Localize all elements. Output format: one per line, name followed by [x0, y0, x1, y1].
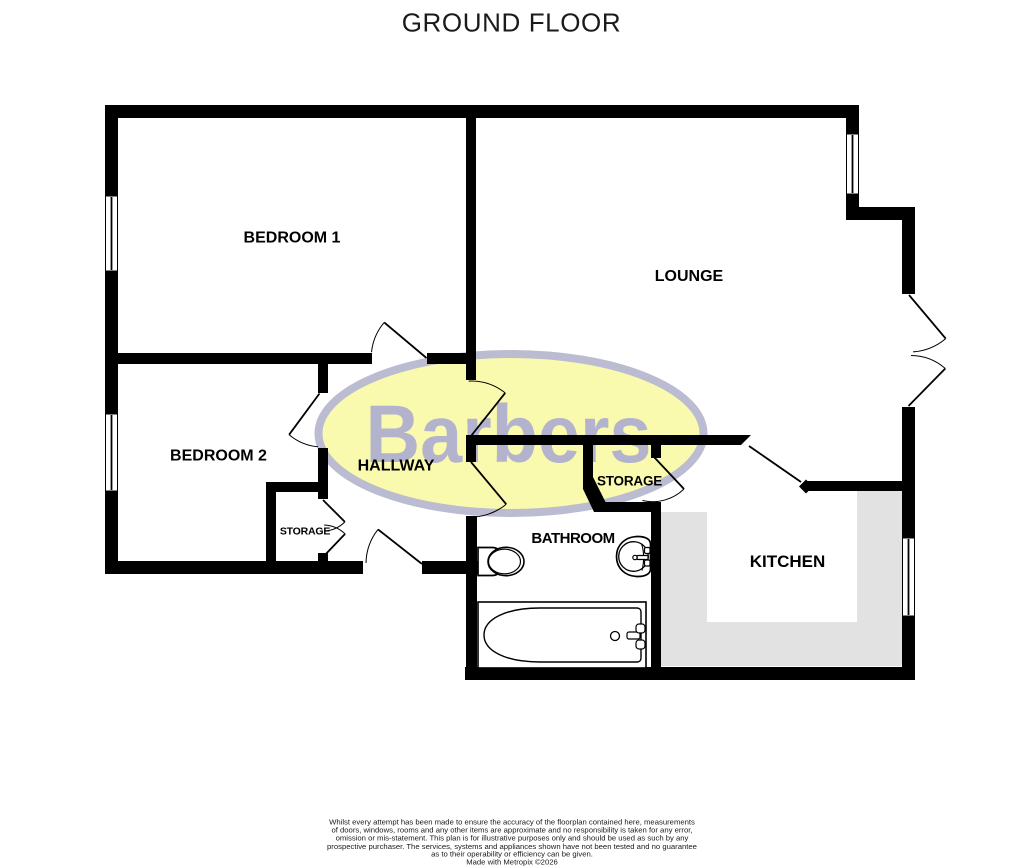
svg-text:GROUND FLOOR: GROUND FLOOR — [402, 8, 622, 38]
svg-text:LOUNGE: LOUNGE — [655, 268, 724, 285]
svg-text:STORAGE: STORAGE — [280, 526, 331, 538]
svg-text:HALLWAY: HALLWAY — [358, 458, 435, 475]
svg-text:Made with Metropix ©2026: Made with Metropix ©2026 — [466, 858, 558, 867]
svg-text:BATHROOM: BATHROOM — [531, 530, 614, 547]
svg-text:BEDROOM 1: BEDROOM 1 — [244, 230, 341, 247]
svg-text:BEDROOM 2: BEDROOM 2 — [170, 448, 267, 465]
svg-text:KITCHEN: KITCHEN — [750, 552, 826, 571]
svg-text:STORAGE: STORAGE — [597, 474, 662, 489]
